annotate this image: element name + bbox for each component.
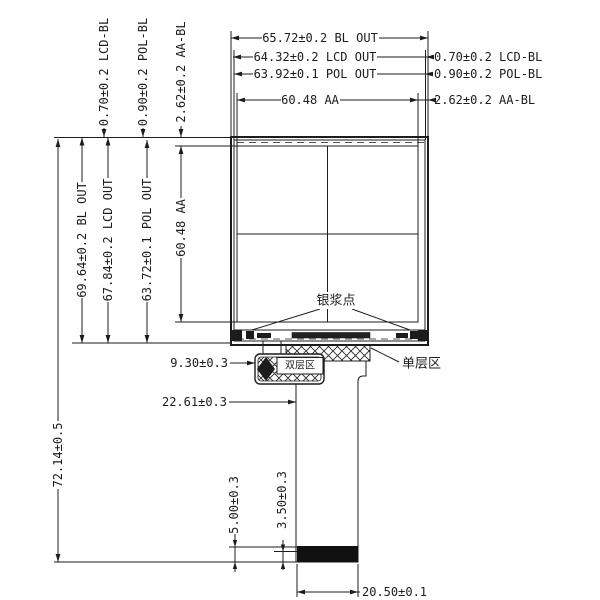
fpc-tail-outline bbox=[285, 361, 366, 562]
drawing-canvas: 双层区 65.72±0.2 BL OUT 64.32±0.2 LCD OUT 6… bbox=[0, 0, 600, 600]
dim-2050: 20.50±0.1 bbox=[362, 585, 427, 599]
dim-500: 5.00±0.3 bbox=[227, 476, 241, 534]
dim-lcd-out-left: 67.84±0.2 LCD OUT bbox=[101, 179, 115, 302]
single-layer-leader bbox=[371, 348, 399, 362]
left-gap-dimensions: 0.70±0.2 LCD-BL 0.90±0.2 POL-BL 2.62±0.2… bbox=[97, 18, 188, 137]
dim-2261: 22.61±0.3 bbox=[162, 395, 227, 409]
silver-paste-leader-left bbox=[252, 309, 320, 330]
dim-lcd-bl-left: 0.70±0.2 LCD-BL bbox=[97, 18, 111, 126]
dim-pol-out-left: 63.72±0.1 POL OUT bbox=[140, 179, 154, 302]
silver-paste-dot-left bbox=[246, 331, 254, 339]
panel-outlines bbox=[231, 137, 428, 345]
silver-paste-leader-right bbox=[352, 309, 410, 330]
driver-ic-bar bbox=[292, 333, 370, 339]
dim-lcd-out: 64.32±0.2 LCD OUT bbox=[254, 50, 377, 64]
left-dimensions: 69.64±0.2 BL OUT 67.84±0.2 LCD OUT 63.72… bbox=[51, 138, 237, 563]
double-layer-label: 双层区 bbox=[285, 360, 315, 372]
dim-bl-out-left: 69.64±0.2 BL OUT bbox=[75, 182, 89, 298]
single-layer-label: 单层区 bbox=[402, 357, 441, 372]
bl-outline bbox=[231, 137, 428, 345]
fpc-dimensions: 9.30±0.3 22.61±0.3 5.00±0.3 3.50±0.3 20.… bbox=[54, 356, 427, 599]
stiffener-bar bbox=[297, 546, 358, 562]
corner-mark-right bbox=[418, 330, 427, 341]
dim-930: 9.30±0.3 bbox=[170, 356, 228, 370]
dim-lcd-bl-right: 0.70±0.2 LCD-BL bbox=[434, 50, 542, 64]
contact-bar-left bbox=[257, 333, 271, 338]
lcd-pol-outline bbox=[234, 140, 425, 341]
dim-aa: 60.48 AA bbox=[281, 93, 340, 107]
dim-aa-bl-left: 2.62±0.2 AA-BL bbox=[174, 21, 188, 122]
dim-aa-left: 60.48 AA bbox=[174, 198, 188, 257]
dim-pol-out: 63.92±0.1 POL OUT bbox=[254, 67, 377, 81]
dim-pol-bl-right: 0.90±0.2 POL-BL bbox=[434, 67, 542, 81]
dim-total-height: 72.14±0.5 bbox=[51, 422, 65, 487]
lcd-outline-drawing: 双层区 65.72±0.2 BL OUT 64.32±0.2 LCD OUT 6… bbox=[0, 0, 600, 600]
silver-paste-dot-right bbox=[410, 331, 418, 339]
contact-bar-right bbox=[396, 333, 408, 338]
dim-pol-bl-left: 0.90±0.2 POL-BL bbox=[136, 18, 150, 126]
corner-mark-left bbox=[232, 330, 242, 341]
fpc-region: 双层区 bbox=[255, 341, 370, 562]
dim-aa-bl-right: 2.62±0.2 AA-BL bbox=[434, 93, 535, 107]
dim-bl-out: 65.72±0.2 BL OUT bbox=[262, 31, 378, 45]
dim-350: 3.50±0.3 bbox=[275, 471, 289, 529]
top-dimensions: 65.72±0.2 BL OUT 64.32±0.2 LCD OUT 63.92… bbox=[231, 31, 542, 146]
silver-paste-label: 银浆点 bbox=[316, 294, 355, 309]
